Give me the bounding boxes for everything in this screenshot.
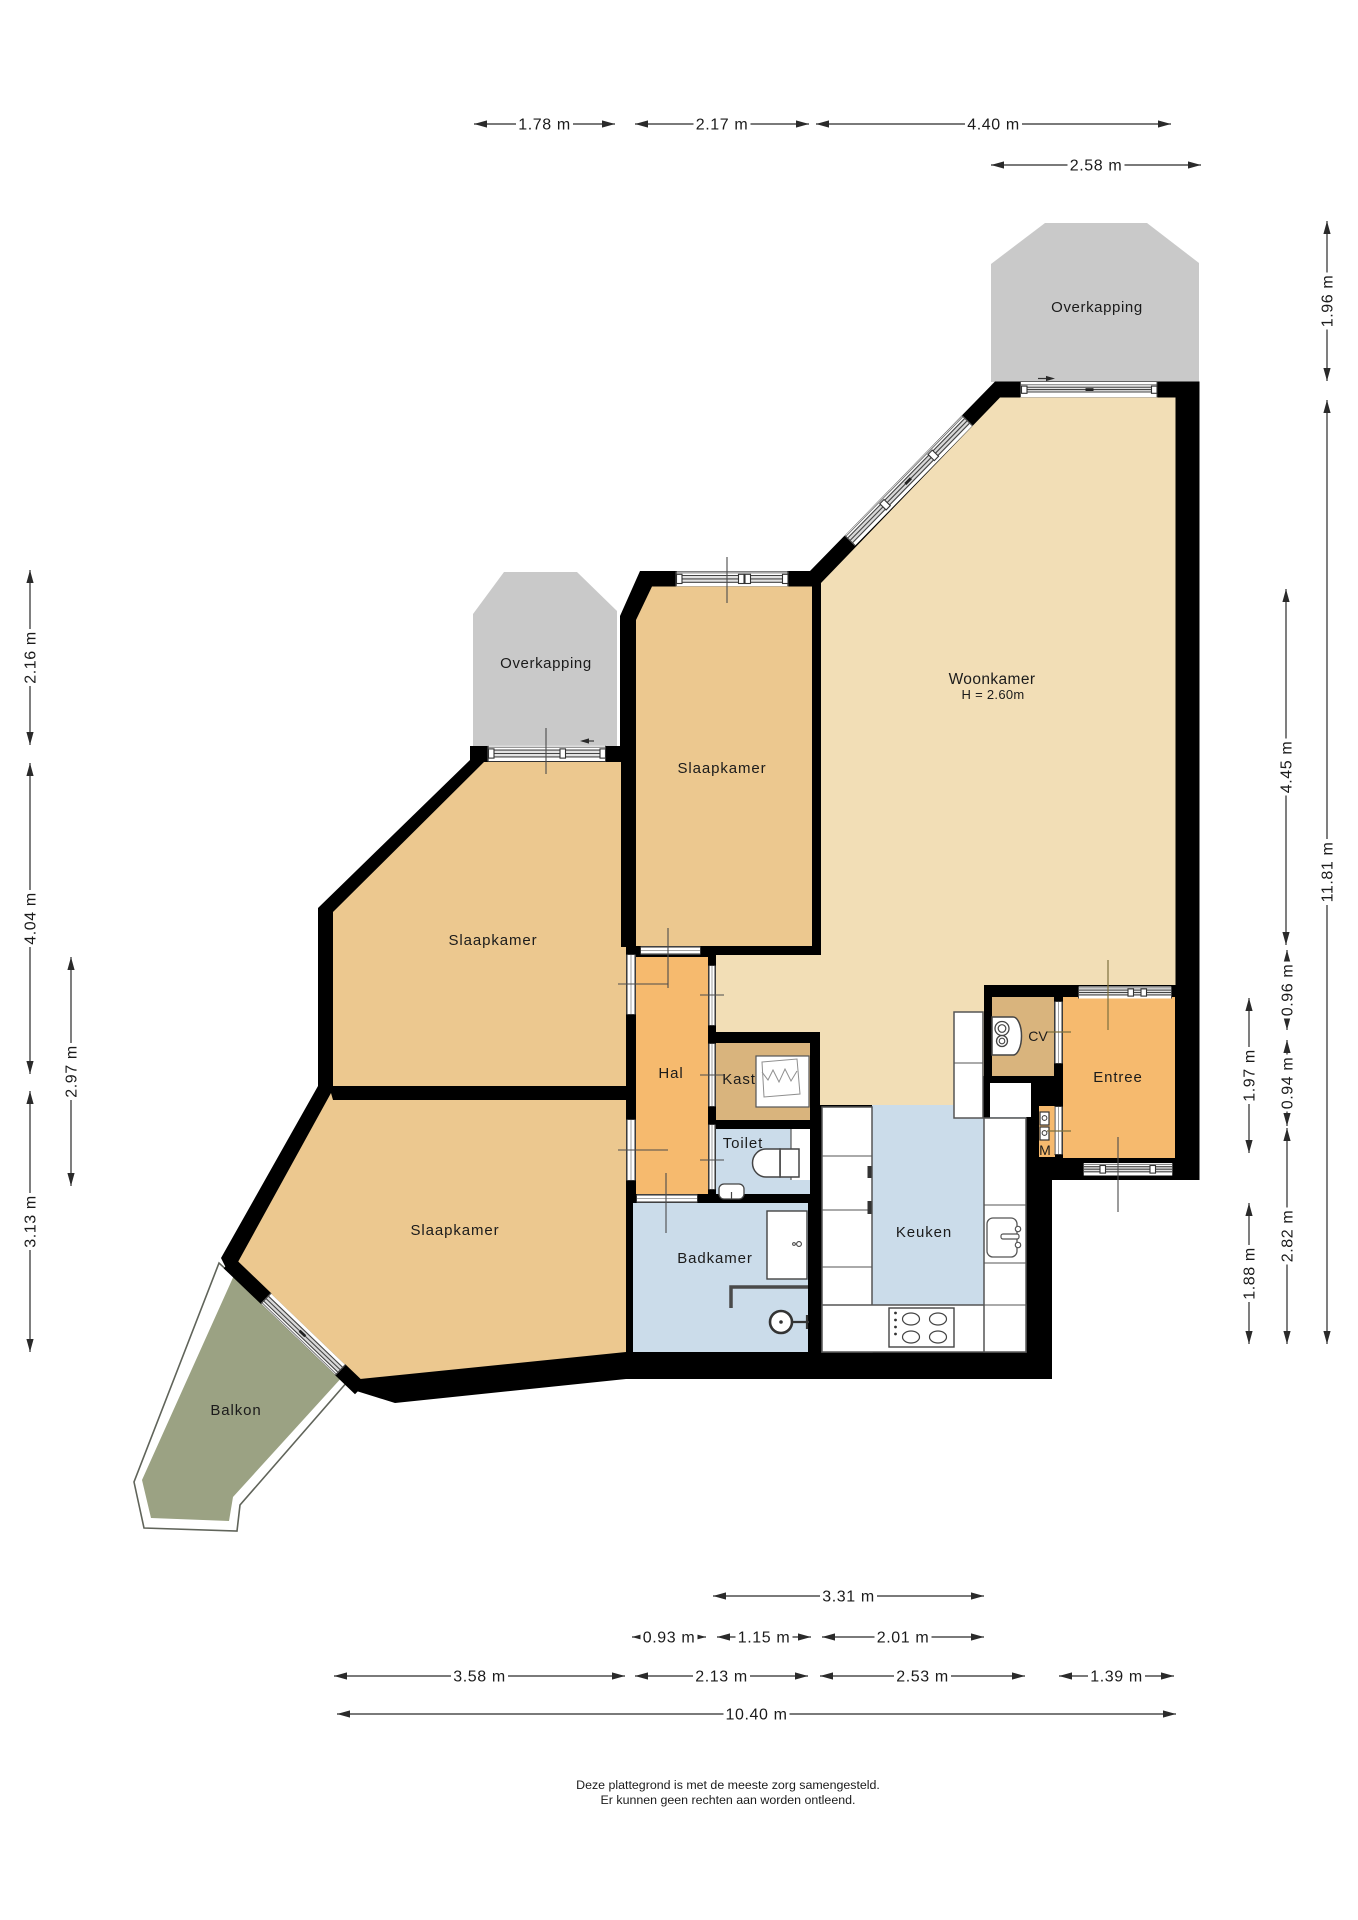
svg-text:2.13 m: 2.13 m <box>695 1669 748 1686</box>
svg-text:3.31 m: 3.31 m <box>822 1589 875 1606</box>
svg-text:Deze plattegrond is met de mee: Deze plattegrond is met de meeste zorg s… <box>576 1778 880 1792</box>
svg-text:Toilet: Toilet <box>723 1135 763 1152</box>
svg-text:2.16 m: 2.16 m <box>23 631 40 684</box>
svg-text:4.45 m: 4.45 m <box>1279 741 1296 794</box>
svg-text:Kast: Kast <box>722 1071 756 1088</box>
svg-text:1.97 m: 1.97 m <box>1242 1049 1259 1102</box>
svg-text:2.82 m: 2.82 m <box>1280 1210 1297 1263</box>
svg-text:3.58 m: 3.58 m <box>453 1669 506 1686</box>
svg-text:Overkapping: Overkapping <box>1051 299 1143 316</box>
svg-text:Balkon: Balkon <box>210 1402 261 1419</box>
svg-text:2.97 m: 2.97 m <box>64 1045 81 1098</box>
svg-text:Slaapkamer: Slaapkamer <box>677 760 766 777</box>
svg-text:Badkamer: Badkamer <box>677 1250 753 1267</box>
svg-text:2.01 m: 2.01 m <box>877 1630 930 1647</box>
svg-text:Woonkamer: Woonkamer <box>949 671 1036 688</box>
svg-text:Hal: Hal <box>658 1065 683 1082</box>
svg-text:1.78 m: 1.78 m <box>518 117 571 134</box>
svg-text:Overkapping: Overkapping <box>500 655 592 672</box>
svg-text:0.93 m: 0.93 m <box>643 1630 696 1647</box>
svg-text:0.96 m: 0.96 m <box>1280 964 1297 1017</box>
svg-text:1.15 m: 1.15 m <box>738 1630 791 1647</box>
svg-text:Er kunnen geen rechten aan wor: Er kunnen geen rechten aan worden ontlee… <box>601 1793 856 1807</box>
svg-text:0.94 m: 0.94 m <box>1280 1057 1297 1110</box>
svg-text:3.13 m: 3.13 m <box>23 1195 40 1248</box>
svg-text:11.81 m: 11.81 m <box>1320 842 1337 903</box>
svg-text:4.40 m: 4.40 m <box>967 117 1020 134</box>
svg-text:2.53 m: 2.53 m <box>896 1669 949 1686</box>
svg-text:H = 2.60m: H = 2.60m <box>961 687 1024 702</box>
svg-text:CV: CV <box>1028 1028 1048 1044</box>
svg-text:M: M <box>1039 1142 1051 1158</box>
svg-text:1.88 m: 1.88 m <box>1242 1247 1259 1300</box>
svg-text:10.40 m: 10.40 m <box>725 1707 787 1724</box>
svg-text:1.96 m: 1.96 m <box>1320 275 1337 328</box>
svg-text:4.04 m: 4.04 m <box>23 892 40 945</box>
svg-text:Entree: Entree <box>1093 1069 1143 1086</box>
svg-text:Slaapkamer: Slaapkamer <box>410 1222 499 1239</box>
svg-text:Keuken: Keuken <box>896 1224 952 1241</box>
svg-text:Slaapkamer: Slaapkamer <box>448 932 537 949</box>
svg-text:2.17 m: 2.17 m <box>696 117 749 134</box>
svg-text:2.58 m: 2.58 m <box>1070 158 1123 175</box>
svg-text:1.39 m: 1.39 m <box>1090 1669 1143 1686</box>
